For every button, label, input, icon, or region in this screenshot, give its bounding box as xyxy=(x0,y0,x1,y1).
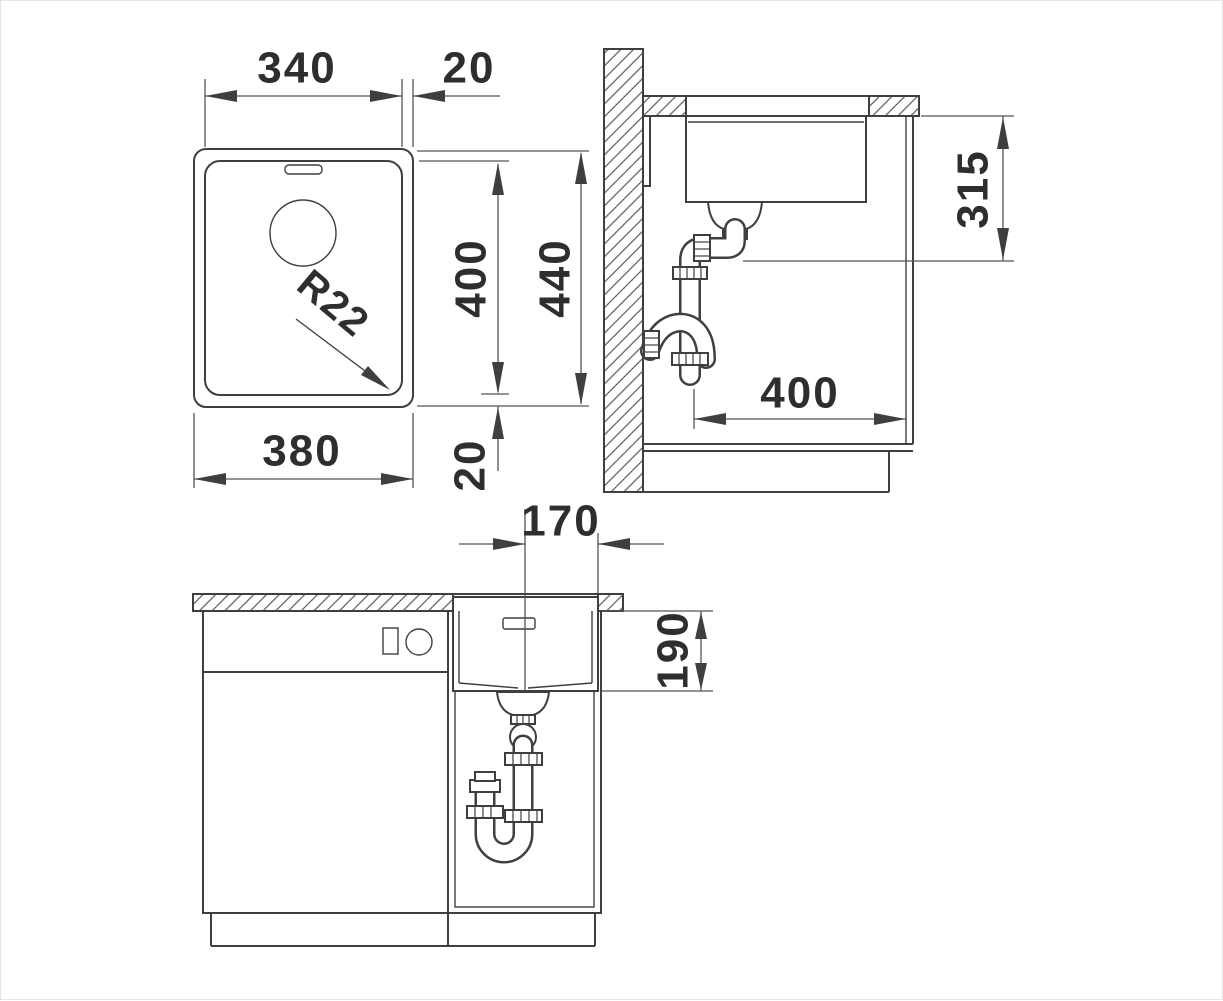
dim-basin-depth: 400 xyxy=(419,161,509,394)
dim-rim-front-label: 20 xyxy=(445,439,494,492)
countertop-section xyxy=(643,96,919,116)
dim-outlet-offset-label: 400 xyxy=(760,368,839,417)
toe-kick xyxy=(211,913,595,946)
wall-mounting-rail xyxy=(643,116,650,186)
dim-overall-depth-label: 440 xyxy=(530,238,579,317)
dim-basin-width-label: 340 xyxy=(257,43,336,92)
dim-drain-center-label: 170 xyxy=(521,496,600,545)
dim-outlet-offset: 400 xyxy=(694,368,906,429)
dim-rim-side-label: 20 xyxy=(443,43,496,92)
plan-view: R22 340 20 400 xyxy=(194,43,589,491)
dim-basin-width: 340 xyxy=(205,43,413,147)
dim-outlet-height-label: 315 xyxy=(948,149,997,228)
left-cabinet xyxy=(203,611,448,913)
dim-basin-height: 190 xyxy=(602,610,713,691)
sink-installation-drawing: R22 340 20 400 xyxy=(1,1,1223,1001)
dim-basin-height-label: 190 xyxy=(648,610,697,689)
dim-rim-side: 20 xyxy=(413,43,500,102)
p-trap-section xyxy=(644,229,735,375)
dim-overall-width: 380 xyxy=(194,413,413,488)
front-view: 170 190 xyxy=(193,496,713,946)
dim-overall-width-label: 380 xyxy=(262,426,341,475)
dim-basin-depth-label: 400 xyxy=(446,238,495,317)
technical-drawing-page: R22 340 20 400 xyxy=(0,0,1223,1000)
basin-section xyxy=(686,116,866,202)
dim-overall-depth: 440 xyxy=(417,151,589,406)
dim-drain-center: 170 xyxy=(459,496,664,593)
dim-rim-front: 20 xyxy=(445,406,504,491)
section-view: 315 400 xyxy=(604,49,1014,492)
wall xyxy=(604,49,643,492)
